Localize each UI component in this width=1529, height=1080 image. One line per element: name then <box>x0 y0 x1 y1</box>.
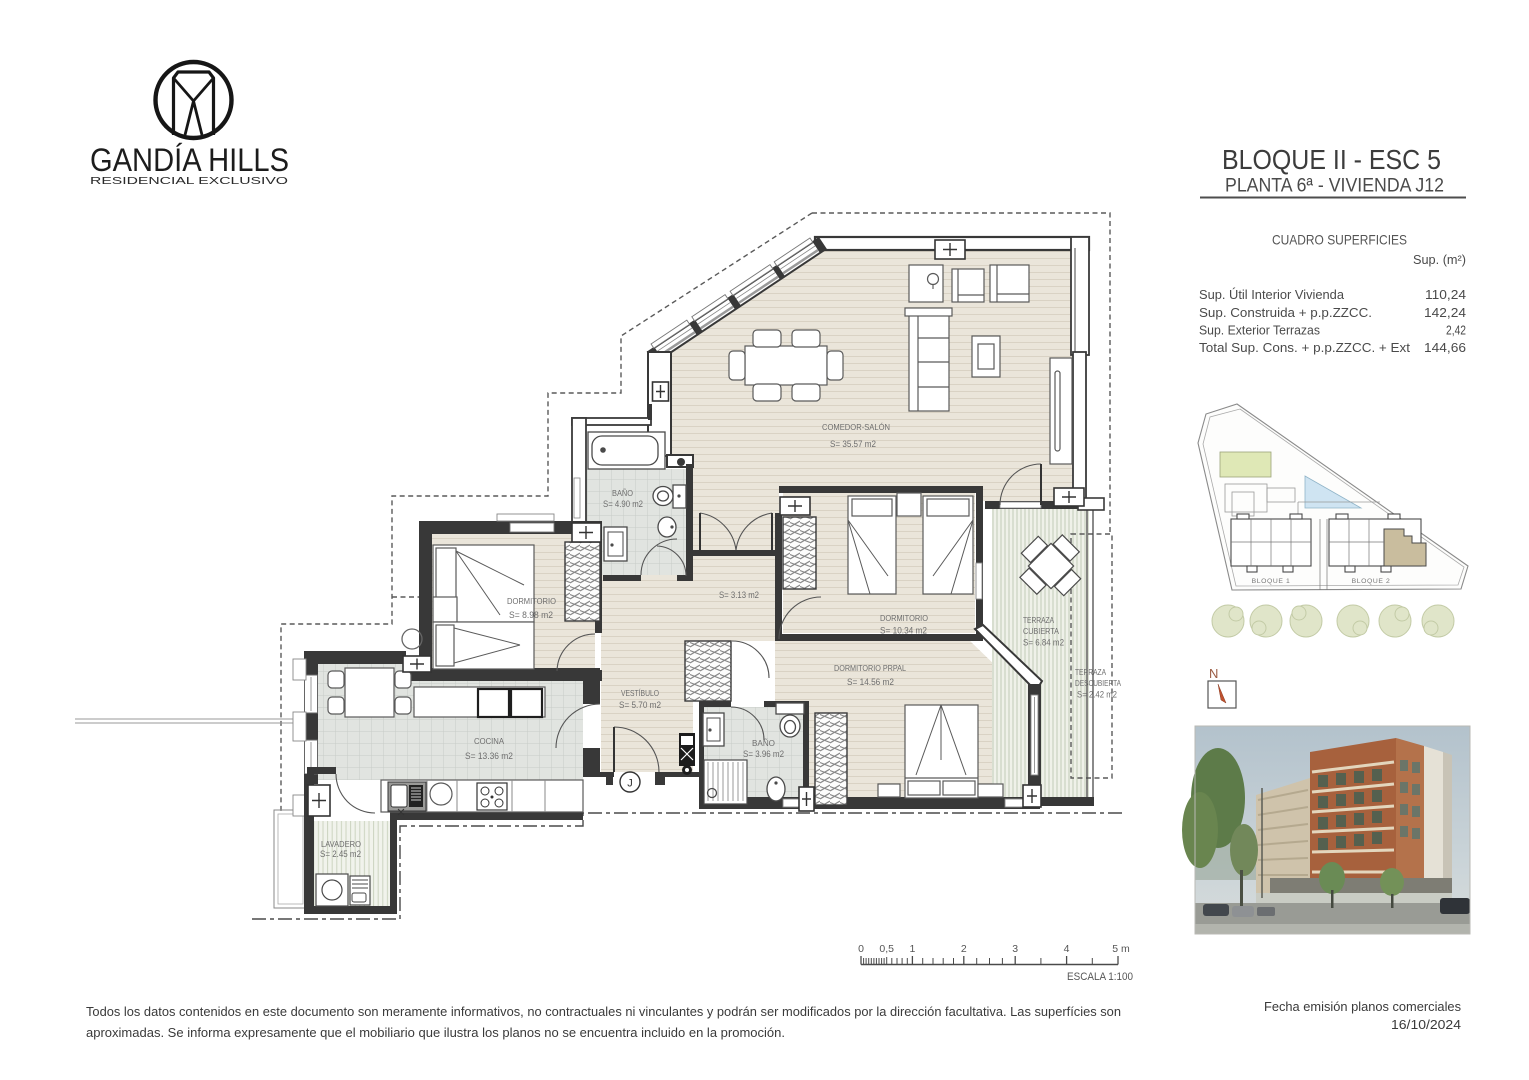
svg-text:16/10/2024: 16/10/2024 <box>1391 1017 1461 1032</box>
svg-text:Total Sup. Cons. + p.p.ZZCC. +: Total Sup. Cons. + p.p.ZZCC. + Ext <box>1199 340 1410 355</box>
svg-text:Sup. (m²): Sup. (m²) <box>1413 252 1466 267</box>
svg-text:S= 14.56 m2: S= 14.56 m2 <box>847 677 894 688</box>
svg-text:Fecha emisión planos comercial: Fecha emisión planos comerciales <box>1264 999 1461 1014</box>
svg-text:J: J <box>627 778 633 790</box>
svg-text:5 m: 5 m <box>1112 943 1130 955</box>
svg-text:PLANTA 6ª - VIVIENDA J12: PLANTA 6ª - VIVIENDA J12 <box>1225 176 1444 197</box>
svg-text:BLOQUE II - ESC 5: BLOQUE II - ESC 5 <box>1222 144 1441 175</box>
svg-text:1: 1 <box>909 943 915 955</box>
svg-text:Todos los datos contenidos en: Todos los datos contenidos en este docum… <box>86 1004 1121 1019</box>
svg-text:3: 3 <box>1012 943 1018 955</box>
svg-text:S= 3.96 m2: S= 3.96 m2 <box>743 749 784 759</box>
svg-text:142,24: 142,24 <box>1424 305 1466 320</box>
svg-text:110,24: 110,24 <box>1425 287 1466 302</box>
svg-text:4: 4 <box>1064 943 1070 955</box>
svg-text:0,5: 0,5 <box>879 943 894 955</box>
svg-text:Sup. Útil Interior Vivienda: Sup. Útil Interior Vivienda <box>1199 287 1345 302</box>
svg-text:DORMITORIO: DORMITORIO <box>880 613 928 623</box>
svg-text:2,42: 2,42 <box>1446 323 1466 338</box>
svg-text:N: N <box>1209 666 1218 681</box>
svg-text:CUADRO SUPERFICIES: CUADRO SUPERFICIES <box>1272 232 1407 248</box>
svg-text:BLOQUE 2: BLOQUE 2 <box>1352 578 1391 585</box>
svg-text:BAÑO: BAÑO <box>752 739 775 748</box>
svg-text:S= 2.45 m2: S= 2.45 m2 <box>320 849 361 859</box>
svg-text:TERRAZA: TERRAZA <box>1075 667 1106 677</box>
svg-text:BAÑO: BAÑO <box>612 489 633 498</box>
svg-text:LAVADERO: LAVADERO <box>321 840 361 849</box>
svg-text:DORMITORIO PRPAL: DORMITORIO PRPAL <box>834 663 906 673</box>
svg-text:CUBIERTA: CUBIERTA <box>1023 626 1059 636</box>
svg-text:ESCALA 1:100: ESCALA 1:100 <box>1067 971 1133 983</box>
svg-text:COMEDOR-SALÓN: COMEDOR-SALÓN <box>822 422 890 432</box>
svg-text:COCINA: COCINA <box>474 736 504 746</box>
svg-text:GANDÍA HILLS: GANDÍA HILLS <box>90 142 289 178</box>
svg-text:BLOQUE 1: BLOQUE 1 <box>1252 578 1291 585</box>
svg-text:RESIDENCIAL EXCLUSIVO: RESIDENCIAL EXCLUSIVO <box>90 175 288 187</box>
svg-text:Sup. Exterior Terrazas: Sup. Exterior Terrazas <box>1199 323 1320 338</box>
svg-text:Sup. Construida + p.p.ZZCC.: Sup. Construida + p.p.ZZCC. <box>1199 305 1372 320</box>
svg-text:aproximadas. Se informa expres: aproximadas. Se informa expresamente que… <box>86 1025 785 1040</box>
svg-text:DESCUBIERTA: DESCUBIERTA <box>1075 678 1121 688</box>
svg-text:0: 0 <box>858 943 864 955</box>
svg-text:S= 5.70 m2: S= 5.70 m2 <box>619 700 661 711</box>
svg-text:DORMITORIO: DORMITORIO <box>507 596 556 606</box>
svg-text:S= 10.34 m2: S= 10.34 m2 <box>880 626 927 637</box>
svg-text:S= 8.98 m2: S= 8.98 m2 <box>509 610 553 621</box>
svg-text:S= 35.57 m2: S= 35.57 m2 <box>830 439 876 450</box>
svg-text:S= 4.90 m2: S= 4.90 m2 <box>603 499 643 509</box>
svg-text:2: 2 <box>961 943 967 955</box>
svg-text:144,66: 144,66 <box>1424 340 1466 355</box>
svg-text:VESTÍBULO: VESTÍBULO <box>621 688 659 698</box>
svg-text:S= 2.42 m2: S= 2.42 m2 <box>1077 690 1117 700</box>
svg-text:S= 13.36 m2: S= 13.36 m2 <box>465 751 513 762</box>
svg-text:TERRAZA: TERRAZA <box>1023 615 1054 625</box>
svg-text:S= 6.84 m2: S= 6.84 m2 <box>1023 638 1064 648</box>
svg-text:S= 3.13 m2: S= 3.13 m2 <box>719 590 759 601</box>
